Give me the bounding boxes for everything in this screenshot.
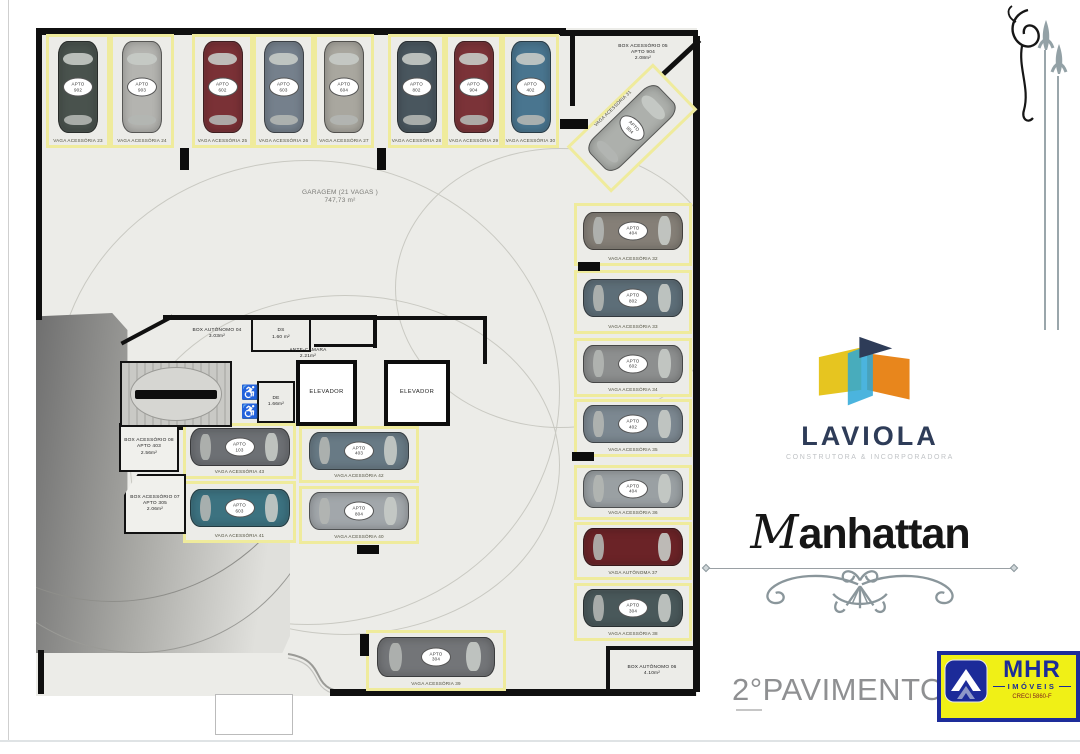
garage-title-line: GARAGEM (21 VAGAS ) (302, 189, 378, 197)
space-label: VAGA ACESSÓRIA 41 (186, 532, 293, 540)
room-label: ELEVADOR (309, 389, 343, 397)
apto-number: 602 (629, 364, 637, 369)
room-label: ELEVADOR (400, 389, 434, 397)
apto-number: 902 (74, 87, 82, 92)
page-border-left (8, 0, 9, 741)
pillar (578, 262, 600, 271)
parking-space-27: APTO604VAGA ACESSÓRIA 27 (314, 34, 374, 148)
apto-number: 402 (526, 87, 534, 92)
room-box-acessorio-08: BOX ACESSÓRIO 08 APTO 403 2.56m² (119, 423, 179, 472)
space-label: VAGA ACESSÓRIA 24 (113, 137, 171, 145)
car-icon: APTO304 (377, 637, 495, 677)
apto-number: 404 (629, 231, 637, 236)
apto-number: 904 (469, 87, 477, 92)
apto-number: 304 (432, 657, 440, 662)
parking-space-32: APTO404VAGA ACESSÓRIA 32 (574, 203, 692, 266)
car-icon: APTO802 (583, 279, 683, 317)
parking-space-28: APTO802VAGA ACESSÓRIA 28 (388, 34, 445, 148)
car-icon: APTO603 (190, 489, 290, 527)
apto-number: 802 (412, 87, 420, 92)
room-label: 2.56m² (141, 451, 157, 457)
car-icon: APTO403 (309, 432, 409, 470)
car-icon: APTO304 (583, 589, 683, 627)
room-label: 1.66m² (268, 402, 284, 408)
ornament-stem (1044, 50, 1046, 330)
room-label: 1.60 m² (272, 335, 290, 341)
laviola-name: LAVIOLA (775, 421, 965, 452)
building-name-rest: anhattan (798, 510, 969, 558)
car-icon: APTO903 (122, 41, 162, 133)
stair-rail (135, 390, 217, 399)
car-icon: APTO103 (190, 428, 290, 466)
apto-oval-label: APTO602 (208, 78, 238, 97)
car-icon: APTO603 (264, 41, 304, 133)
apto-number: 603 (235, 508, 243, 513)
apto-oval-label: APTO602 (618, 354, 648, 373)
parking-space-39: APTO304VAGA ACESSÓRIA 39 (366, 630, 506, 691)
car-icon: APTO602 (203, 41, 243, 133)
parking-space-42: APTO403VAGA ACESSÓRIA 42 (299, 426, 419, 483)
apto-oval-label: APTO103 (225, 438, 255, 457)
apto-oval-label: APTO604 (329, 78, 359, 97)
mhr-logo: MHR IMÓVEIS CRECI 5860-F (937, 651, 1080, 722)
pillar (180, 148, 189, 170)
car-icon: APTO902 (58, 41, 98, 133)
wheelchair-icon: ♿♿ (238, 383, 262, 427)
flourish-icon (745, 565, 975, 617)
mhr-creci: CRECI 5860-F (991, 694, 1073, 700)
car-icon: APTO904 (454, 41, 494, 133)
room-box-acessorio-07: BOX ACESSÓRIO 07 APTO 305 2.06m² (124, 474, 186, 534)
apto-number: 404 (629, 489, 637, 494)
pillar (572, 452, 594, 461)
apto-oval-label: APTO904 (459, 78, 489, 97)
apto-oval-label: APTO304 (421, 647, 451, 666)
room-label: 2.06m² (147, 507, 163, 513)
car-icon: APTO402 (583, 405, 683, 443)
parking-space-34: APTO602VAGA ACESSÓRIA 34 (574, 338, 692, 397)
apto-oval-label: APTO802 (618, 289, 648, 308)
wall (38, 650, 44, 694)
laviola-logo: LAVIOLA CONSTRUTORA & INCORPORADORA (775, 332, 965, 461)
apto-number: 304 (629, 608, 637, 613)
space-label: VAGA ACESSÓRIA 42 (302, 472, 416, 480)
space-label: VAGA ACESSÓRIA 23 (49, 137, 107, 145)
space-label: VAGA ACESSÓRIA 29 (448, 137, 499, 145)
wall (36, 28, 42, 320)
apto-number: 103 (235, 447, 243, 452)
laviola-tagline: CONSTRUTORA & INCORPORADORA (775, 454, 965, 461)
room-label: 3.03m² (209, 334, 225, 340)
parking-space-30: APTO402VAGA ACESSÓRIA 30 (502, 34, 559, 148)
car-icon: APTO804 (309, 492, 409, 530)
car-icon: APTO402 (511, 41, 551, 133)
rosette-icon (1010, 564, 1018, 572)
dash-line (993, 686, 1005, 688)
building-name-initial: M (750, 505, 798, 560)
space-label: VAGA ACESSÓRIA 39 (369, 680, 503, 688)
apto-number: 804 (355, 511, 363, 516)
wall (483, 316, 487, 364)
parking-space-25: APTO602VAGA ACESSÓRIA 25 (192, 34, 253, 148)
mhr-text-block: MHR IMÓVEIS CRECI 5860-F (991, 659, 1073, 700)
apto-oval-label: APTO603 (225, 499, 255, 518)
mhr-house-icon (944, 659, 988, 703)
pillar (560, 119, 588, 129)
space-label: VAGA ACESSÓRIA 25 (195, 137, 250, 145)
room-elevator-2: ELEVADOR (384, 360, 450, 426)
rosette-icon (702, 564, 710, 572)
room-de: DE 1.66m² (257, 381, 295, 423)
parking-space-37: VAGA AUTÔNOMA 37 (574, 522, 692, 580)
apto-number: 903 (138, 87, 146, 92)
pillar (377, 148, 386, 170)
building-name-block: Manhattan (705, 505, 1015, 622)
dash-line (1059, 686, 1071, 688)
footer-scribble (736, 709, 762, 711)
garage-area: 747,73 m² (324, 197, 355, 205)
space-label: VAGA ACESSÓRIA 34 (577, 386, 689, 394)
pillar (357, 545, 379, 554)
room-elevator-1: ELEVADOR (296, 360, 357, 426)
pillar (360, 634, 369, 656)
space-label: VAGA ACESSÓRIA 26 (256, 137, 311, 145)
corner-flourish-icon (998, 2, 1078, 126)
apto-number: 603 (279, 87, 287, 92)
space-label: VAGA ACESSÓRIA 27 (317, 137, 371, 145)
wall (560, 30, 698, 36)
apto-number: 604 (340, 87, 348, 92)
space-label: VAGA ACESSÓRIA 33 (577, 323, 689, 331)
parking-space-43: APTO103VAGA ACESSÓRIA 43 (183, 423, 296, 479)
parking-space-41: APTO603VAGA ACESSÓRIA 41 (183, 481, 296, 543)
parking-space-40: APTO804VAGA ACESSÓRIA 40 (299, 486, 419, 544)
parking-space-24: APTO903VAGA ACESSÓRIA 24 (110, 34, 174, 148)
parking-space-35: APTO402VAGA ACESSÓRIA 35 (574, 399, 692, 457)
room-label: 4.10m² (644, 671, 660, 677)
parking-space-26: APTO603VAGA ACESSÓRIA 26 (253, 34, 314, 148)
building-name: Manhattan (705, 505, 1015, 560)
room-box-acessorio-05: BOX ACESSÓRIO 05 APTO 904 2.08m² (590, 38, 696, 68)
mhr-name: MHR (991, 659, 1073, 681)
parking-space-23: APTO902VAGA ACESSÓRIA 23 (46, 34, 110, 148)
apto-oval-label: APTO404 (618, 221, 648, 240)
apto-oval-label: APTO603 (269, 78, 299, 97)
divider-line (707, 568, 1013, 569)
room-box-autonomo-06: BOX AUTÔNOMO 06 4.10m² (606, 646, 694, 692)
apto-oval-label: APTO802 (402, 78, 432, 97)
space-label: VAGA ACESSÓRIA 38 (577, 630, 689, 638)
parking-space-29: APTO904VAGA ACESSÓRIA 29 (445, 34, 502, 148)
apto-number: 402 (629, 424, 637, 429)
wall (693, 36, 700, 692)
car-icon: APTO802 (397, 41, 437, 133)
page-border-bottom (0, 740, 1080, 742)
mhr-type-row: IMÓVEIS (991, 682, 1073, 691)
apto-number: 802 (629, 298, 637, 303)
parking-space-38: APTO304VAGA ACESSÓRIA 38 (574, 583, 692, 641)
car-icon: APTO404 (583, 212, 683, 250)
space-label: VAGA ACESSÓRIA 28 (391, 137, 442, 145)
laviola-logo-icon (805, 332, 935, 414)
apto-oval-label: APTO402 (516, 78, 546, 97)
garage-title: GARAGEM (21 VAGAS ) 747,73 m² (270, 186, 410, 208)
space-label: VAGA ACESSÓRIA 40 (302, 533, 416, 541)
space-label: VAGA ACESSÓRIA 30 (505, 137, 556, 145)
car-icon: APTO602 (583, 345, 683, 383)
apto-oval-label: APTO804 (344, 502, 374, 521)
ornament-stem (1057, 76, 1059, 330)
car-icon: APTO404 (583, 470, 683, 508)
parking-space-33: APTO802VAGA ACESSÓRIA 33 (574, 270, 692, 334)
mhr-type: IMÓVEIS (1008, 682, 1057, 691)
apto-oval-label: APTO404 (618, 479, 648, 498)
curb-curve (285, 640, 365, 696)
space-label: VAGA ACESSÓRIA 43 (186, 468, 293, 476)
apto-number: 403 (355, 451, 363, 456)
room-box-autonomo-04: BOX AUTÔNOMO 04 3.03m² (170, 324, 264, 344)
space-label: VAGA ACESSÓRIA 36 (577, 509, 689, 517)
parking-space-36: APTO404VAGA ACESSÓRIA 36 (574, 465, 692, 520)
wall (570, 34, 575, 106)
space-label: VAGA AUTÔNOMA 37 (577, 569, 689, 577)
room-label: 2.08m² (635, 56, 651, 62)
apto-oval-label: APTO902 (63, 78, 93, 97)
wall (373, 316, 377, 348)
apto-oval-label: APTO402 (618, 415, 648, 434)
car-icon (583, 528, 683, 566)
apto-number: 602 (218, 87, 226, 92)
apto-oval-label: APTO403 (344, 441, 374, 460)
staircase (120, 361, 232, 427)
exterior-column-outline (215, 694, 293, 735)
apto-oval-label: APTO903 (127, 78, 157, 97)
apto-oval-label: APTO904 (615, 111, 650, 146)
car-icon: APTO604 (324, 41, 364, 133)
wall (377, 316, 487, 320)
apto-oval-label: APTO304 (618, 599, 648, 618)
